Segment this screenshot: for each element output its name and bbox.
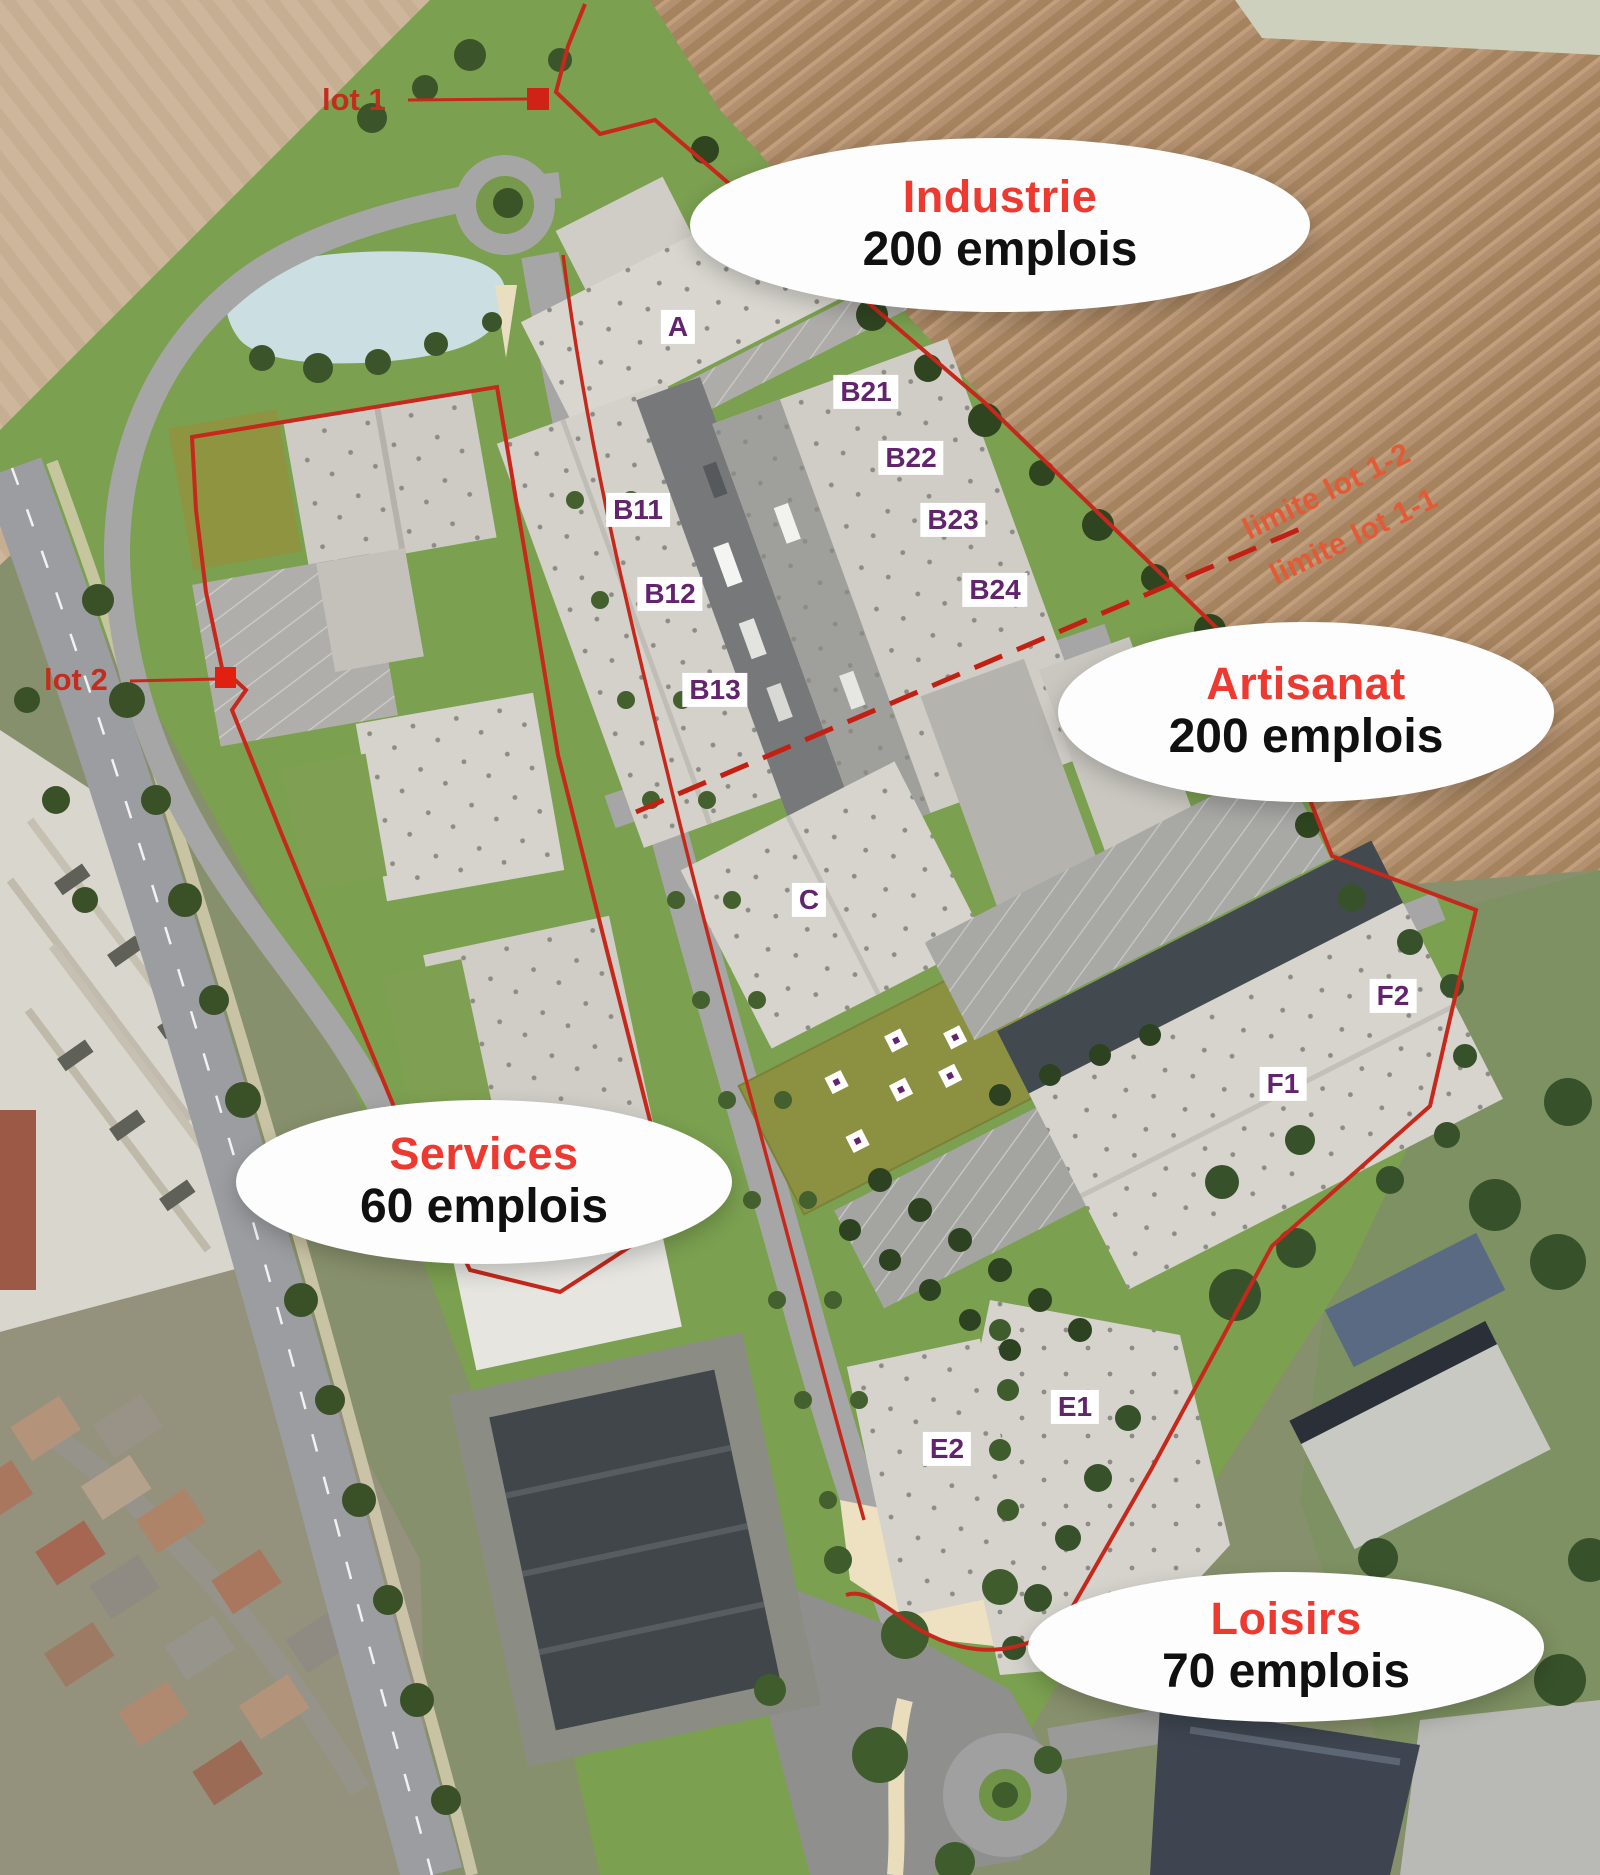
lot-1-label: lot 1	[322, 82, 386, 118]
building-label-f1: F1	[1260, 1067, 1307, 1101]
building-label-b21: B21	[833, 375, 898, 409]
lot2-leader-line	[130, 679, 218, 681]
building-label-b24: B24	[962, 573, 1027, 607]
site-plan-aerial-map: lot 1 lot 2 limite lot 1-2 limite lot 1-…	[0, 0, 1600, 1875]
building-label-c: C	[792, 883, 826, 917]
lot-2-label: lot 2	[44, 662, 108, 698]
building-label-b11: B11	[606, 493, 670, 527]
callout-industrie: Industrie 200 emplois	[690, 138, 1310, 312]
building-label-b22: B22	[878, 441, 943, 475]
building-label-a: A	[661, 310, 695, 344]
roundabout-north	[455, 155, 555, 255]
building-label-e1: E1	[1051, 1390, 1099, 1424]
zone-jobs: 200 emplois	[1169, 711, 1444, 764]
zone-title: Services	[389, 1130, 578, 1177]
zone-jobs: 70 emplois	[1162, 1646, 1410, 1699]
lot1-marker-dot	[527, 88, 549, 110]
zone-jobs: 200 emplois	[863, 224, 1138, 277]
building-label-b12: B12	[637, 577, 702, 611]
callout-loisirs: Loisirs 70 emplois	[1028, 1572, 1544, 1722]
callout-artisanat: Artisanat 200 emplois	[1058, 622, 1554, 802]
zone-title: Industrie	[903, 173, 1098, 220]
building-label-b23: B23	[920, 503, 985, 537]
lot2-marker-dot	[215, 667, 236, 688]
building-label-f2: F2	[1370, 979, 1417, 1013]
zone-title: Artisanat	[1206, 660, 1406, 707]
lot1-leader-line	[408, 99, 528, 100]
zone-title: Loisirs	[1210, 1595, 1361, 1642]
building-label-e2: E2	[923, 1432, 971, 1466]
callout-services: Services 60 emplois	[236, 1100, 732, 1264]
building-label-b13: B13	[682, 673, 747, 707]
zone-jobs: 60 emplois	[360, 1181, 608, 1234]
